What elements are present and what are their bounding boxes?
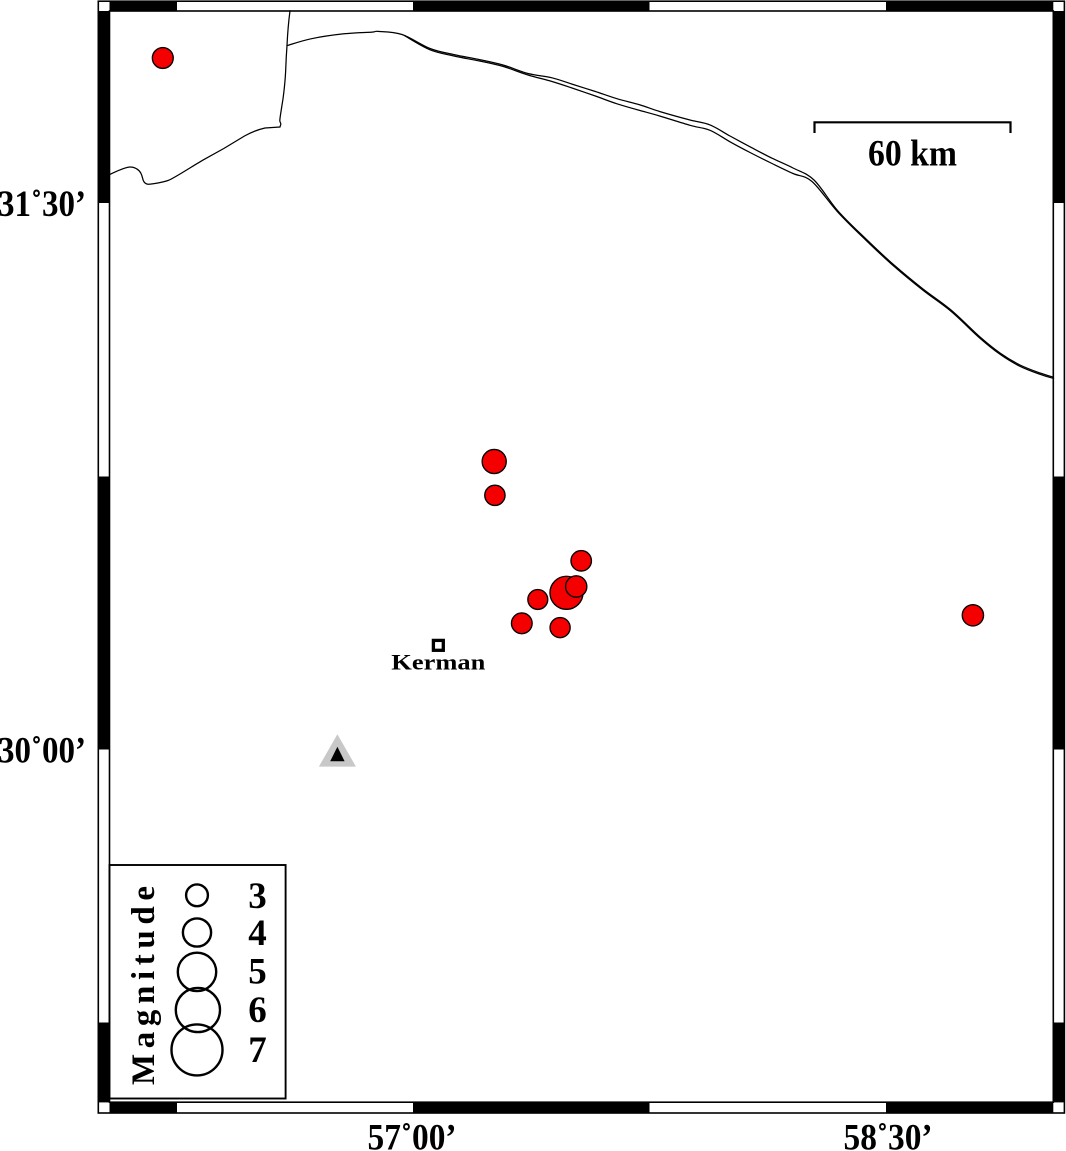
svg-text:6: 6 [248,990,267,1031]
svg-text:3: 3 [248,876,267,917]
svg-text:31˚30’: 31˚30’ [0,183,86,224]
svg-text:57˚00’: 57˚00’ [368,1116,457,1151]
svg-text:4: 4 [248,913,267,954]
svg-text:7: 7 [248,1030,267,1071]
svg-text:60 km: 60 km [868,133,957,174]
svg-text:5: 5 [248,952,267,993]
svg-text:Kerman: Kerman [391,650,486,675]
svg-text:30˚00’: 30˚00’ [0,730,86,771]
svg-text:58˚30’: 58˚30’ [844,1116,933,1151]
